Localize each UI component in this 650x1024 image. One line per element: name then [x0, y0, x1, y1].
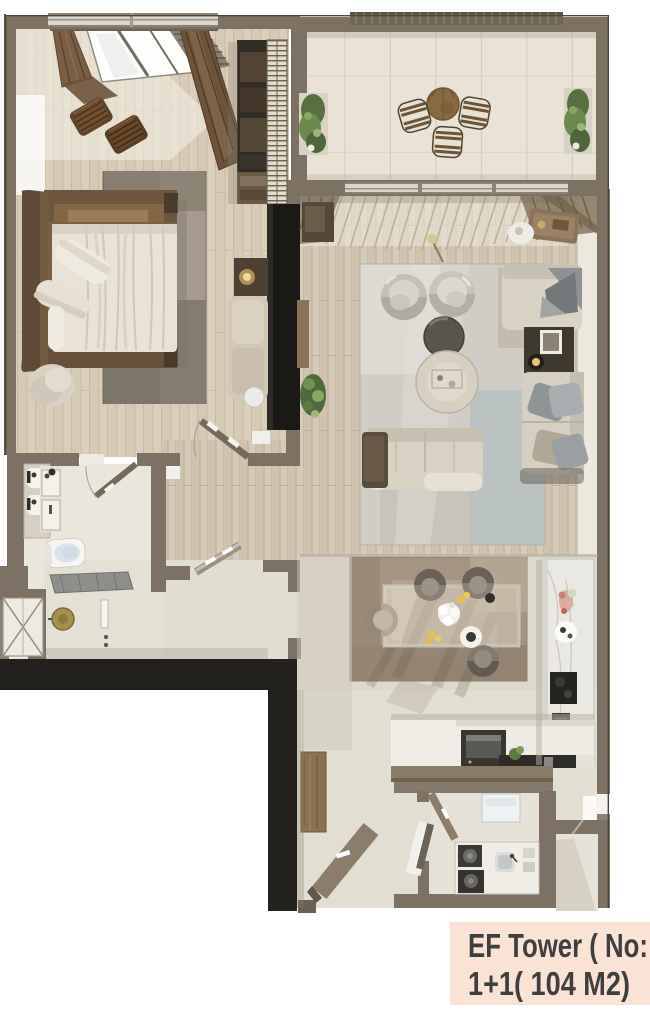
svg-text:EF Tower ( No:: EF Tower ( No:: [468, 927, 648, 964]
svg-text:1+1( 104 M2): 1+1( 104 M2): [468, 965, 630, 1002]
